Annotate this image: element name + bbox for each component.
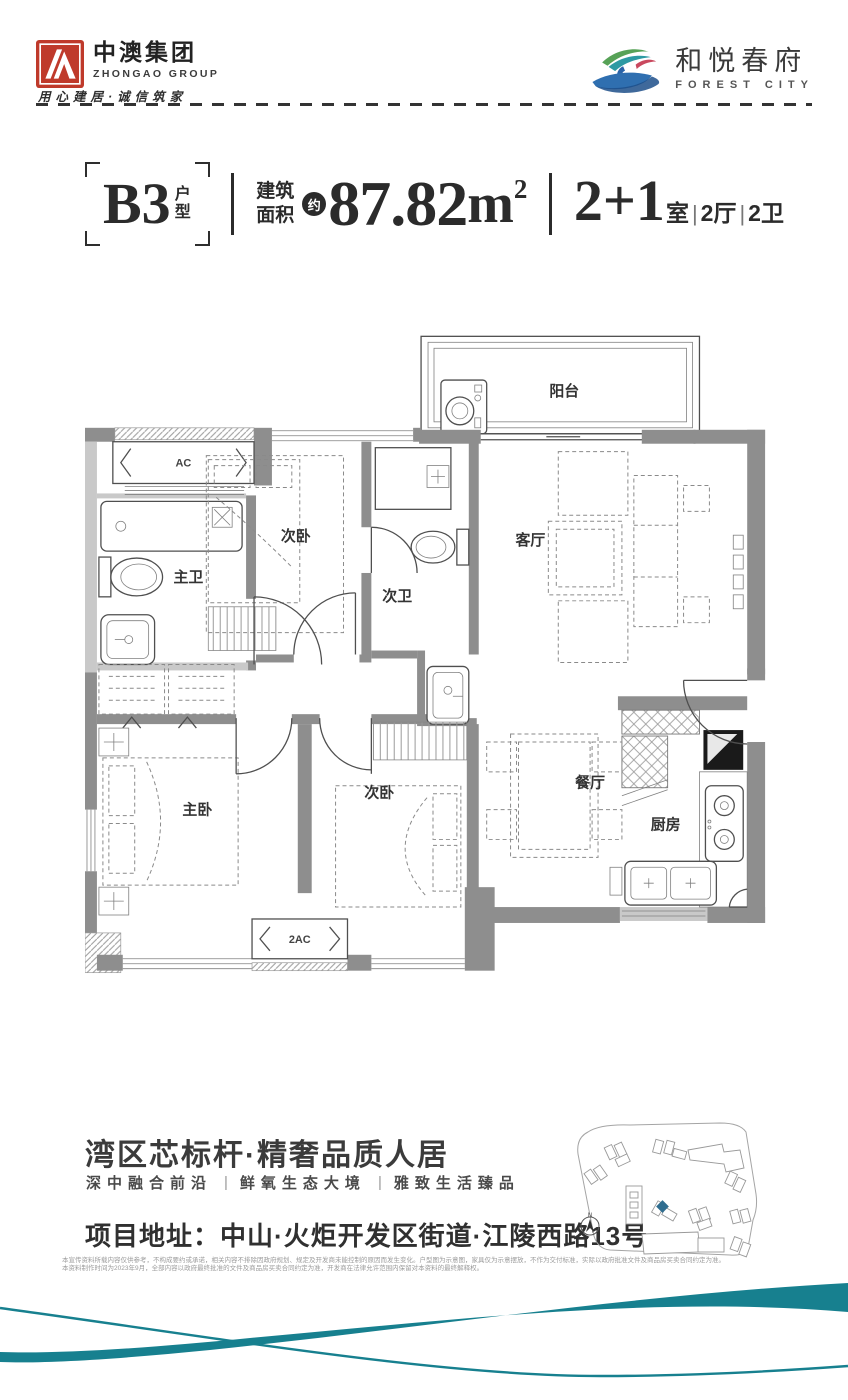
- unit-spec-bar: B3 户 型 建筑 面积 约 87.82 m 2 2+1 室 | 2厅 | 2卫: [85, 160, 785, 248]
- compass-label: N: [588, 1213, 592, 1219]
- room-label-bedroom2-top: 次卧: [281, 527, 311, 545]
- legal-disclaimer: 本宣传资料所载内容仅供参考，不构成要约或承诺，相关内容不排除因政府规划、规定及开…: [62, 1257, 818, 1273]
- rooms-bath-count: 2卫: [748, 194, 784, 228]
- bracket-corner: [85, 231, 100, 246]
- room-label-bath2: 次卫: [382, 587, 412, 605]
- area-unit: m: [467, 176, 514, 232]
- zhongao-logo-icon: [36, 40, 84, 88]
- dining-furniture: [487, 734, 622, 857]
- bedroom-top-furniture: [206, 456, 343, 651]
- room-label-bedroom2-bottom: 次卧: [364, 784, 394, 802]
- rooms-main-count: 2+1: [574, 174, 665, 227]
- area-label-line1: 建筑: [256, 180, 294, 204]
- room-label-ac2: 2AC: [289, 934, 311, 946]
- door-swings: [236, 527, 747, 774]
- rooms-main-unit: 室: [666, 194, 689, 228]
- bracket-corner: [195, 231, 210, 246]
- site-buildings: [584, 1137, 751, 1256]
- built-area: 建筑 面积 约 87.82 m 2: [256, 172, 527, 236]
- living-furniture: [548, 452, 743, 663]
- marketing-headline: 湾区芯标杆·精奢品质人居: [85, 1130, 449, 1174]
- kitchen-fixtures: [610, 710, 747, 907]
- room-label-kitchen: 厨房: [651, 815, 681, 833]
- area-label: 建筑 面积: [256, 180, 294, 228]
- dashed-divider: [36, 103, 812, 106]
- selling-point-1: 深中融合前沿: [86, 1172, 212, 1193]
- footer-wave-graphic: [0, 1272, 848, 1400]
- unit-suffix-char2: 型: [175, 204, 192, 222]
- flyer-page: 中澳集团 ZHONGAO GROUP 用心建居·诚信筑家 和悦春府 FOREST…: [0, 0, 848, 1400]
- unit-type-badge: B3 户 型: [85, 162, 210, 246]
- area-value: 87.82: [328, 172, 467, 236]
- compass-icon: N: [581, 1213, 599, 1235]
- room-label-ac: AC: [176, 458, 192, 470]
- approx-badge: 约: [302, 192, 326, 216]
- developer-name-en: ZHONGAO GROUP: [93, 68, 219, 80]
- project-name-en: FOREST CITY: [675, 79, 814, 91]
- forest-city-logo-icon: [587, 42, 667, 96]
- bracket-corner: [85, 162, 100, 177]
- area-superscript: 2: [514, 174, 528, 205]
- master-bedroom-furniture: [99, 728, 238, 915]
- unit-type-code: B3: [103, 175, 171, 233]
- project-name: 和悦春府: [675, 47, 814, 75]
- project-logo: 和悦春府 FOREST CITY: [587, 42, 814, 96]
- room-label-master-bedroom: 主卧: [182, 801, 212, 819]
- project-address: 项目地址：中山·火炬开发区街道·江陵西路13号: [85, 1216, 648, 1253]
- disclaimer-line-1: 本宣传资料所载内容仅供参考，不构成要约或承诺，相关内容不排除因政府规划、规定及开…: [62, 1257, 818, 1265]
- selling-point-3: 雅致生活臻品: [394, 1172, 520, 1193]
- point-separator: |: [378, 1174, 382, 1191]
- bedroom-bottom-furniture: [336, 722, 467, 907]
- site-plan-map: N: [570, 1116, 790, 1264]
- floorplan-drawing: 阳台 AC 主卫 次卧 次卫 客厅 主卧 次卧 餐厅 厨房 2AC: [85, 330, 781, 980]
- unit-type-suffix: 户 型: [175, 186, 192, 223]
- unit-suffix-char1: 户: [175, 186, 192, 204]
- vertical-divider: [549, 173, 552, 235]
- selling-points: 深中融合前沿 | 鲜氧生态大境 | 雅致生活臻品: [86, 1172, 520, 1193]
- room-count: 2+1 室 | 2厅 | 2卫: [574, 174, 785, 233]
- selling-point-2: 鲜氧生态大境: [240, 1172, 366, 1193]
- room-label-balcony: 阳台: [549, 382, 579, 400]
- developer-name: 中澳集团: [93, 40, 219, 65]
- vertical-divider: [231, 173, 234, 235]
- rooms-separator: |: [692, 201, 698, 227]
- bracket-corner: [195, 162, 210, 177]
- area-label-line2: 面积: [256, 204, 294, 228]
- room-label-dining: 餐厅: [575, 774, 605, 792]
- rooms-separator: |: [739, 201, 745, 227]
- rooms-hall-count: 2厅: [701, 194, 737, 228]
- room-label-living: 客厅: [515, 531, 546, 549]
- room-label-master-bath: 主卫: [173, 568, 203, 586]
- point-separator: |: [224, 1174, 228, 1191]
- developer-logo: 中澳集团 ZHONGAO GROUP: [36, 40, 219, 88]
